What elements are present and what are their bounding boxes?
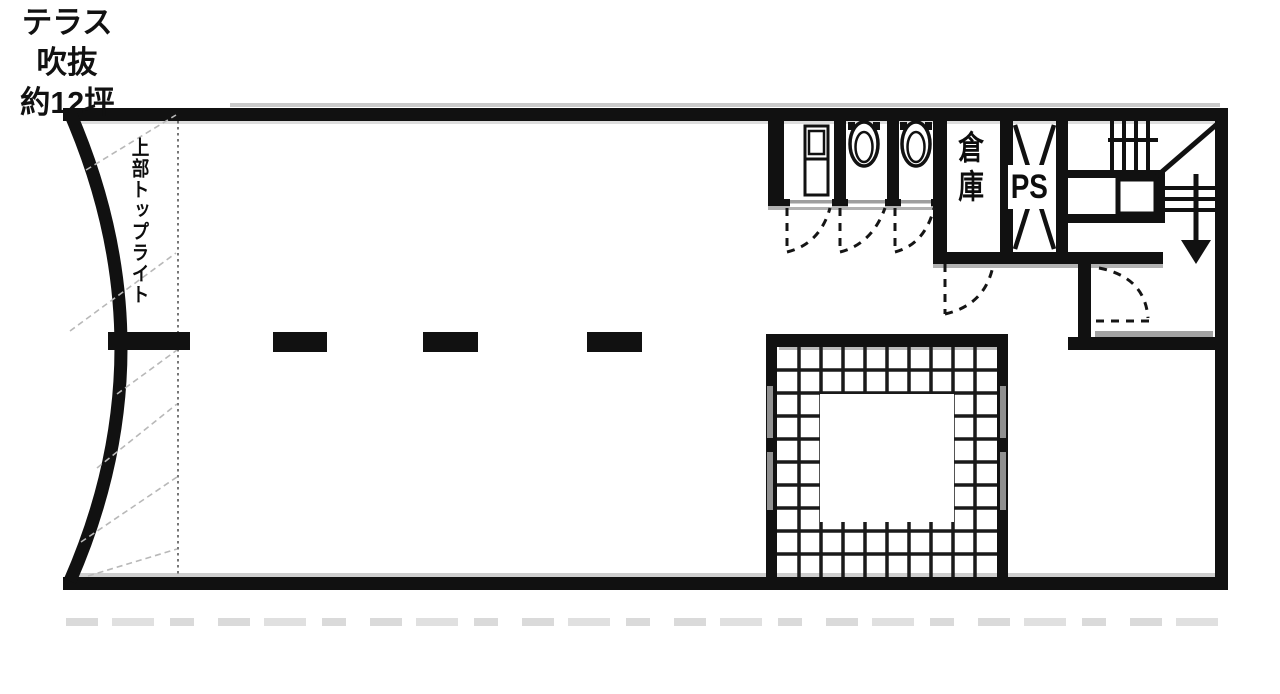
exterior-walls: [63, 108, 1228, 590]
entry-door-swing: [1096, 268, 1150, 321]
stall-door-lintel-lines: [790, 200, 931, 204]
pipe-space-right-wall: [1056, 121, 1068, 264]
partition-dash-marks: [273, 332, 642, 352]
top-wall: [63, 108, 1228, 121]
terrace-label-line1: テラス: [22, 3, 113, 43]
toilet-fixture-1: [848, 122, 880, 166]
stair-lower-treads: [1165, 188, 1215, 210]
stair-down-arrow-head: [1181, 240, 1211, 264]
storage-room-label: 倉庫: [950, 130, 987, 208]
faint-caption-strip: [66, 618, 1226, 626]
terrace-label-line3: 約12坪: [20, 83, 115, 123]
pipe-space-label: PS: [1008, 165, 1051, 209]
terrace-label-backing: [820, 394, 954, 522]
stair-break-diagonal: [1157, 119, 1223, 176]
terrace-label-line2: 吹抜: [37, 43, 98, 83]
washstand-fixture: [805, 126, 828, 195]
left-wall-stub: [108, 332, 190, 350]
storage-door-swing: [945, 264, 993, 314]
stair-landing-box: [1118, 179, 1156, 214]
staircase: [1068, 119, 1223, 264]
stall-door-swings: [787, 208, 934, 252]
stair-upper-treads: [1108, 121, 1158, 171]
toilet-fixture-2: [900, 122, 932, 166]
bottom-wall: [63, 577, 1228, 590]
skylight-label: 上部トップライト: [126, 137, 152, 305]
stair-mid-wall-lower: [1068, 214, 1165, 223]
floor-plan-linework: [0, 0, 1280, 694]
floor-plan-canvas: 上部トップライト 倉庫 PS テラス 吹抜 約12坪: [0, 0, 1280, 694]
